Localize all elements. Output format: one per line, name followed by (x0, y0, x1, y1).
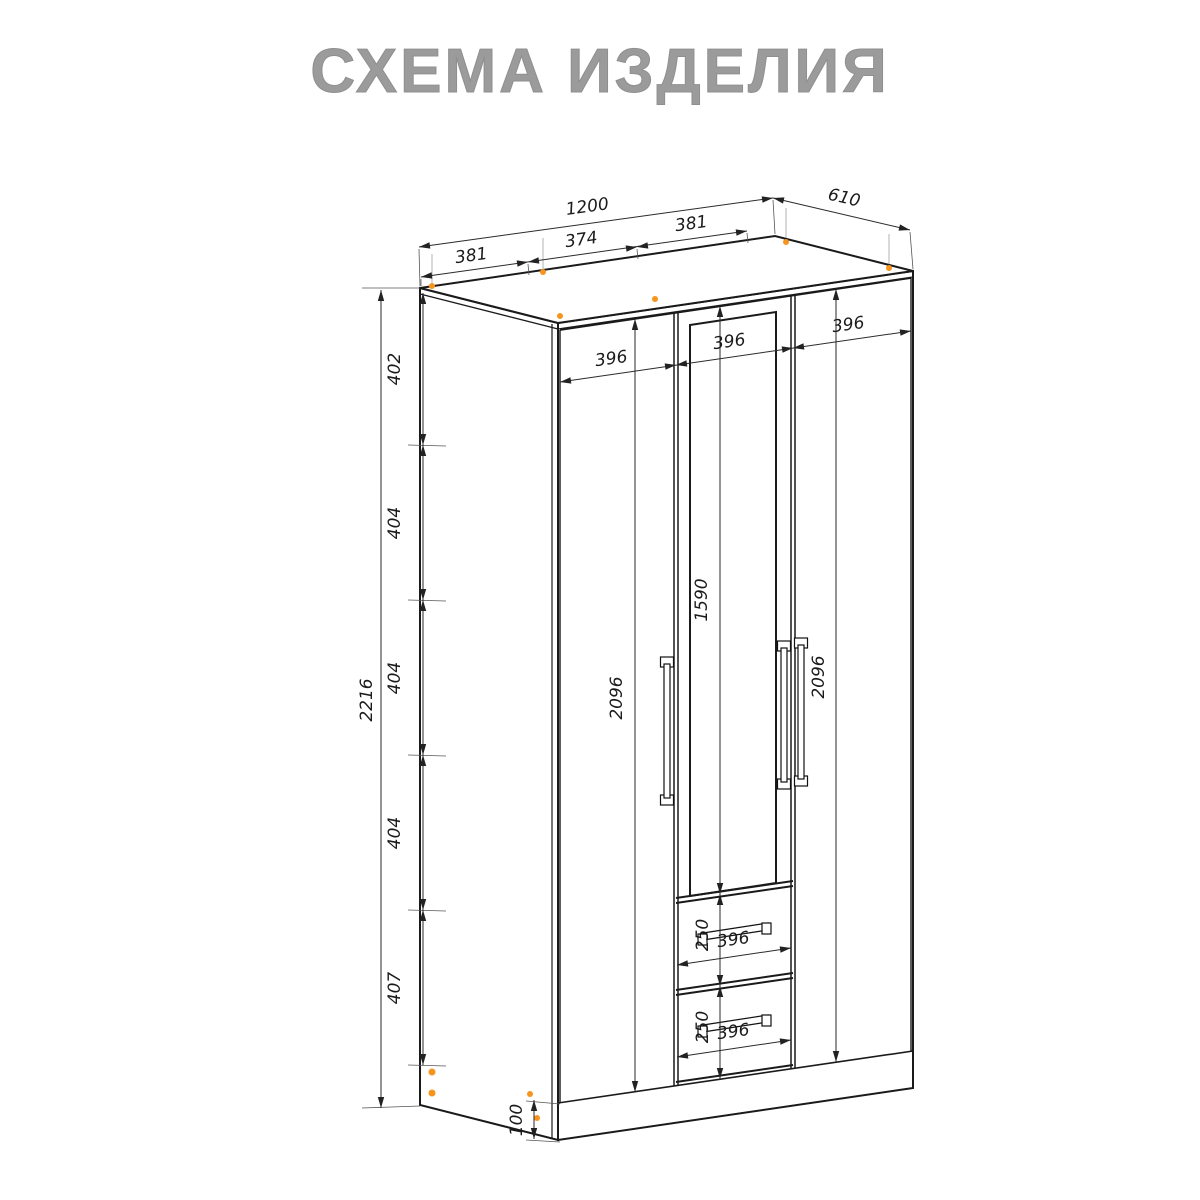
left-side-panel (420, 288, 558, 1140)
dim-label-depth: 610 (826, 185, 862, 212)
dim-label-door-height-right: 2096 (809, 655, 829, 698)
dim-label-left-segment-4: 404 (385, 817, 405, 849)
dim-label-left-segment-3: 404 (385, 662, 405, 694)
dim-label-left-segment-5: 407 (385, 972, 405, 1005)
dim-label-top-section-2: 374 (564, 228, 599, 252)
dim-label-base-height: 100 (507, 1104, 527, 1136)
dim-label-drawer2-height: 250 (693, 1011, 713, 1043)
dim-label-mirror-height: 1590 (692, 578, 712, 621)
dim-label-left-segment-1: 402 (385, 353, 405, 385)
dim-label-height-total: 2216 (357, 678, 377, 721)
dim-label-width-total: 1200 (564, 194, 610, 220)
dim-label-top-section-1: 381 (454, 244, 489, 268)
wardrobe-technical-drawing: 1200 610 381 374 381 2216 402 404 404 40… (0, 0, 1200, 1200)
product-schema-page: СХЕМА ИЗДЕЛИЯ (0, 0, 1200, 1200)
dim-label-top-section-3: 381 (674, 212, 709, 236)
dim-label-left-segment-2: 404 (385, 507, 405, 539)
dim-label-door-height-left: 2096 (607, 676, 627, 719)
dim-label-drawer1-height: 250 (693, 919, 713, 951)
